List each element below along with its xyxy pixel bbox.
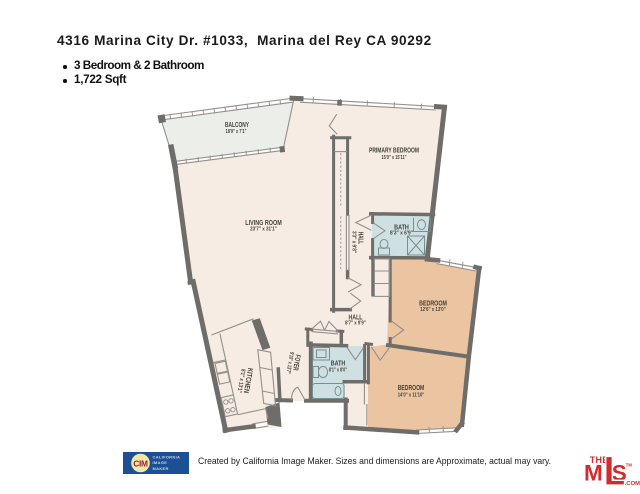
svg-text:3'3" x 9'8": 3'3" x 9'8"	[351, 231, 357, 253]
svg-text:CIM: CIM	[133, 458, 148, 468]
svg-text:HALL: HALL	[357, 232, 366, 244]
svg-text:BATH: BATH	[331, 358, 345, 367]
svg-text:BEDROOM: BEDROOM	[398, 383, 425, 392]
svg-text:12'6" x 13'0": 12'6" x 13'0"	[420, 307, 446, 313]
svg-text:8'7" x 9'9": 8'7" x 9'9"	[345, 321, 366, 327]
svg-text:PRIMARY BEDROOM: PRIMARY BEDROOM	[369, 146, 419, 155]
svg-text:M: M	[584, 461, 603, 486]
svg-text:18'9" x 7'1": 18'9" x 7'1"	[226, 129, 247, 135]
svg-text:CALIFORNIA: CALIFORNIA	[153, 455, 181, 460]
svg-text:15'0" x 15'11": 15'0" x 15'11"	[382, 155, 407, 161]
svg-text:MAKER: MAKER	[153, 466, 169, 471]
svg-text:23'7" x 31'1": 23'7" x 31'1"	[250, 227, 277, 233]
svg-text:.COM: .COM	[625, 481, 640, 487]
svg-text:8'1" x 8'0": 8'1" x 8'0"	[329, 368, 347, 374]
svg-text:14'0" x 11'10": 14'0" x 11'10"	[398, 392, 425, 398]
svg-text:BALCONY: BALCONY	[225, 120, 249, 129]
svg-text:IMAGE: IMAGE	[153, 460, 168, 465]
svg-text:TM: TM	[626, 463, 633, 468]
svg-text:8'3" x 6'9": 8'3" x 6'9"	[390, 231, 413, 237]
